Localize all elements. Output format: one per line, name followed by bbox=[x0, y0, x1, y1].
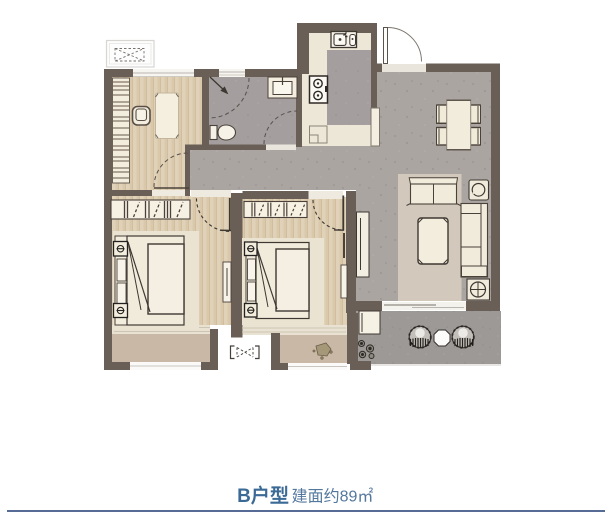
svg-text:建面约89㎡: 建面约89㎡ bbox=[292, 488, 374, 506]
svg-text:B户型: B户型 bbox=[237, 484, 289, 507]
